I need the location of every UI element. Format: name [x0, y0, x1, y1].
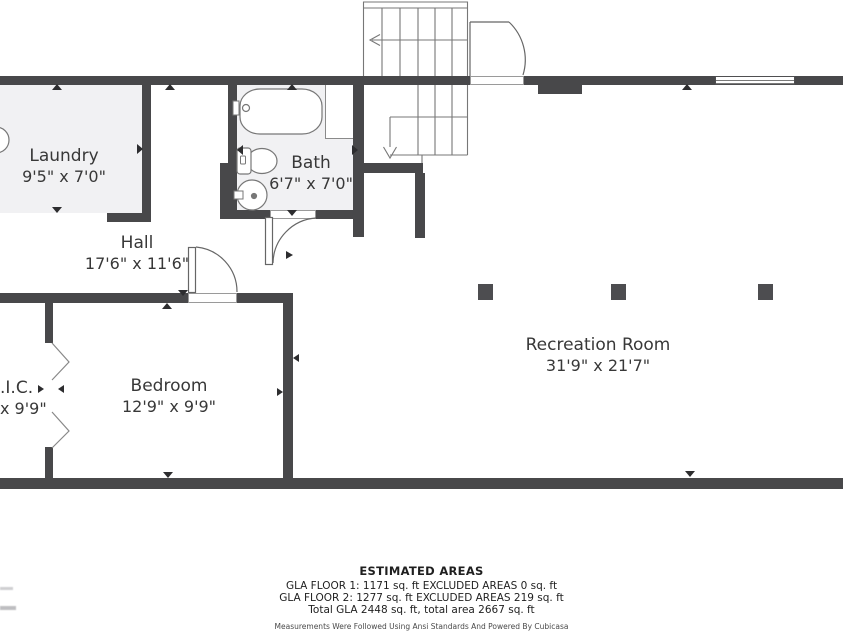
room-dims: 6'7" x 7'0"	[269, 176, 353, 192]
laundry-label: Laundry 9'5" x 7'0"	[22, 148, 106, 185]
bath-label: Bath 6'7" x 7'0"	[269, 155, 353, 192]
room-dims: 9'5" x 7'0"	[22, 169, 106, 185]
estimated-areas-title: ESTIMATED AREAS	[0, 566, 843, 578]
stairs-door	[470, 22, 525, 76]
room-dims: x 9'9"	[0, 401, 47, 417]
floorplan-linework	[0, 0, 843, 632]
room-name: Laundry	[22, 148, 106, 165]
bedroom-door	[189, 247, 238, 293]
room-name: .I.C.	[0, 380, 47, 397]
recreation-room-label: Recreation Room 31'9" x 21'7"	[526, 337, 671, 374]
bedroom-label: Bedroom 12'9" x 9'9"	[122, 378, 216, 415]
bath-door	[266, 218, 317, 265]
room-name: Bedroom	[122, 378, 216, 395]
room-dims: 12'9" x 9'9"	[122, 399, 216, 415]
floorplan-canvas: Laundry 9'5" x 7'0" Bath 6'7" x 7'0" Hal…	[0, 0, 843, 632]
gla-floor2: GLA FLOOR 2: 1277 sq. ft EXCLUDED AREAS …	[0, 593, 843, 604]
bathtub	[233, 89, 322, 134]
wic-label: .I.C. x 9'9"	[0, 380, 47, 417]
room-name: Hall	[85, 235, 189, 252]
stairs-lower-flight	[384, 85, 468, 163]
room-name: Bath	[269, 155, 353, 172]
disclaimer: Measurements Were Followed Using Ansi St…	[0, 623, 843, 631]
gla-floor1: GLA FLOOR 1: 1171 sq. ft EXCLUDED AREAS …	[0, 581, 843, 592]
sink	[234, 180, 267, 210]
logo-fragment	[0, 587, 13, 590]
hall-label: Hall 17'6" x 11'6"	[85, 235, 189, 272]
wic-bifold-door	[52, 343, 69, 448]
room-dims: 17'6" x 11'6"	[85, 256, 189, 272]
gla-total: Total GLA 2448 sq. ft, total area 2667 s…	[0, 605, 843, 616]
washer	[0, 127, 9, 153]
logo-fragment	[0, 606, 16, 610]
room-dims: 31'9" x 21'7"	[526, 358, 671, 374]
wall-markers	[38, 84, 695, 478]
room-name: Recreation Room	[526, 337, 671, 354]
stairs-upper-flight	[364, 2, 468, 76]
